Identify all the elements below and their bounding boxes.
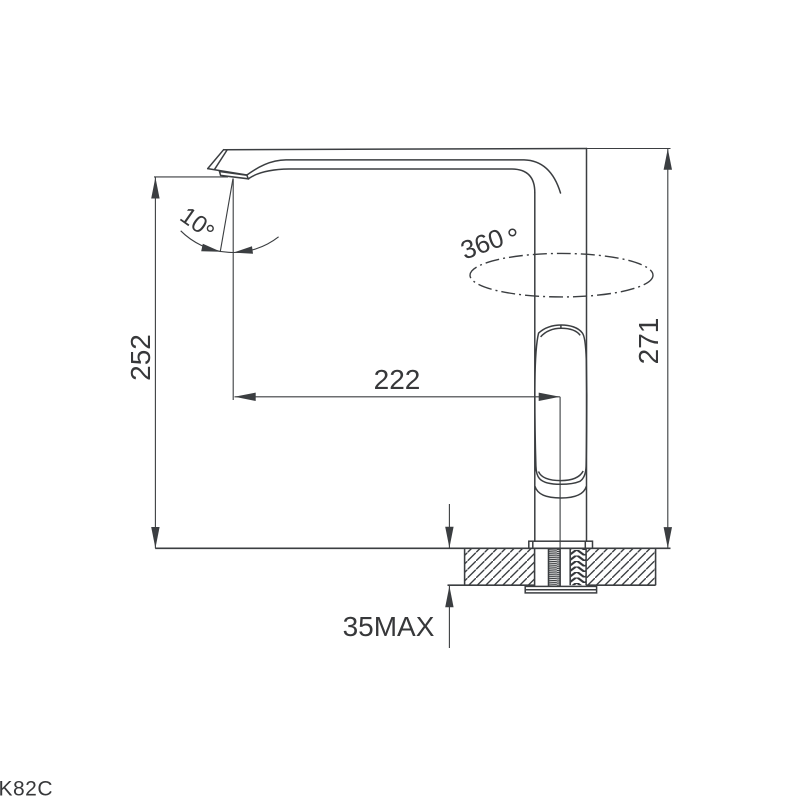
svg-text:271: 271 (633, 318, 664, 365)
svg-text:35MAX: 35MAX (343, 611, 435, 642)
svg-text:360: 360 (457, 222, 508, 265)
svg-text:K82C: K82C (0, 778, 53, 800)
svg-text:252: 252 (125, 334, 156, 381)
svg-text:10: 10 (175, 202, 212, 239)
svg-text:222: 222 (374, 364, 421, 395)
